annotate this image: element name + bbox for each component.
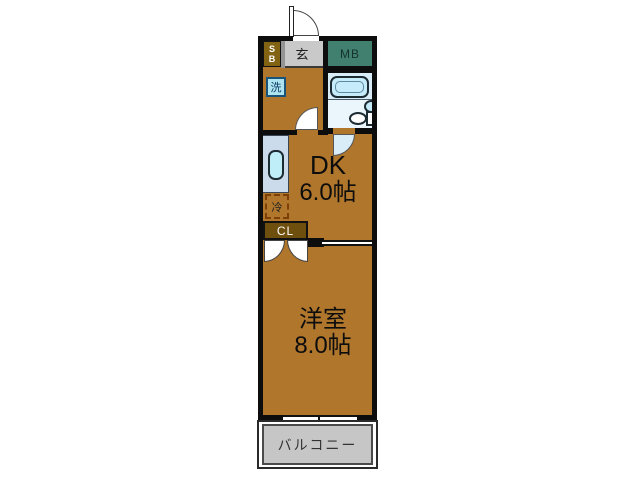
kitchen-sink — [268, 150, 284, 180]
entrance-door-jamb — [281, 41, 285, 68]
entrance-area: 玄 — [281, 41, 323, 68]
meter-box: MB — [328, 41, 372, 66]
western-room-size: 8.0帖 — [294, 333, 351, 359]
washer-label: 洗 — [271, 79, 282, 95]
balcony-label: バルコニー — [278, 435, 358, 455]
balcony: バルコニー — [262, 424, 373, 465]
closet: CL — [263, 221, 308, 240]
meter-box-label: MB — [340, 47, 360, 61]
refrigerator-label: 冷 — [272, 199, 283, 215]
dk-room-window — [322, 240, 372, 246]
bathtub-inner-line — [335, 81, 364, 93]
western-room-name: 洋室 — [299, 306, 347, 333]
wall-below-mb — [323, 66, 372, 73]
entrance-label: 玄 — [295, 44, 308, 63]
wall-right — [372, 36, 377, 421]
closet-label: CL — [277, 224, 294, 238]
wall-hall-dk-right — [318, 130, 328, 135]
dk-name: DK — [310, 151, 346, 180]
bathroom — [328, 73, 372, 128]
washer-spot: 洗 — [266, 77, 286, 97]
toilet-tank — [366, 111, 372, 126]
wall-bath-bottom-right — [355, 128, 372, 134]
shoe-box: S B — [263, 41, 281, 67]
dk-size: 6.0帖 — [299, 180, 356, 206]
western-room-label: 洋室 8.0帖 — [278, 303, 368, 361]
toilet — [349, 112, 367, 125]
dk-room-label: DK 6.0帖 — [283, 148, 373, 208]
entrance-door-leaf — [289, 6, 294, 37]
entrance-door-swing-arc — [293, 10, 319, 36]
floorplan-canvas: S B 玄 MB 洗 冷 DK 6.0帖 CL 洋室 — [0, 0, 640, 480]
bathtub — [330, 76, 369, 98]
shoe-box-label: S B — [269, 44, 276, 64]
